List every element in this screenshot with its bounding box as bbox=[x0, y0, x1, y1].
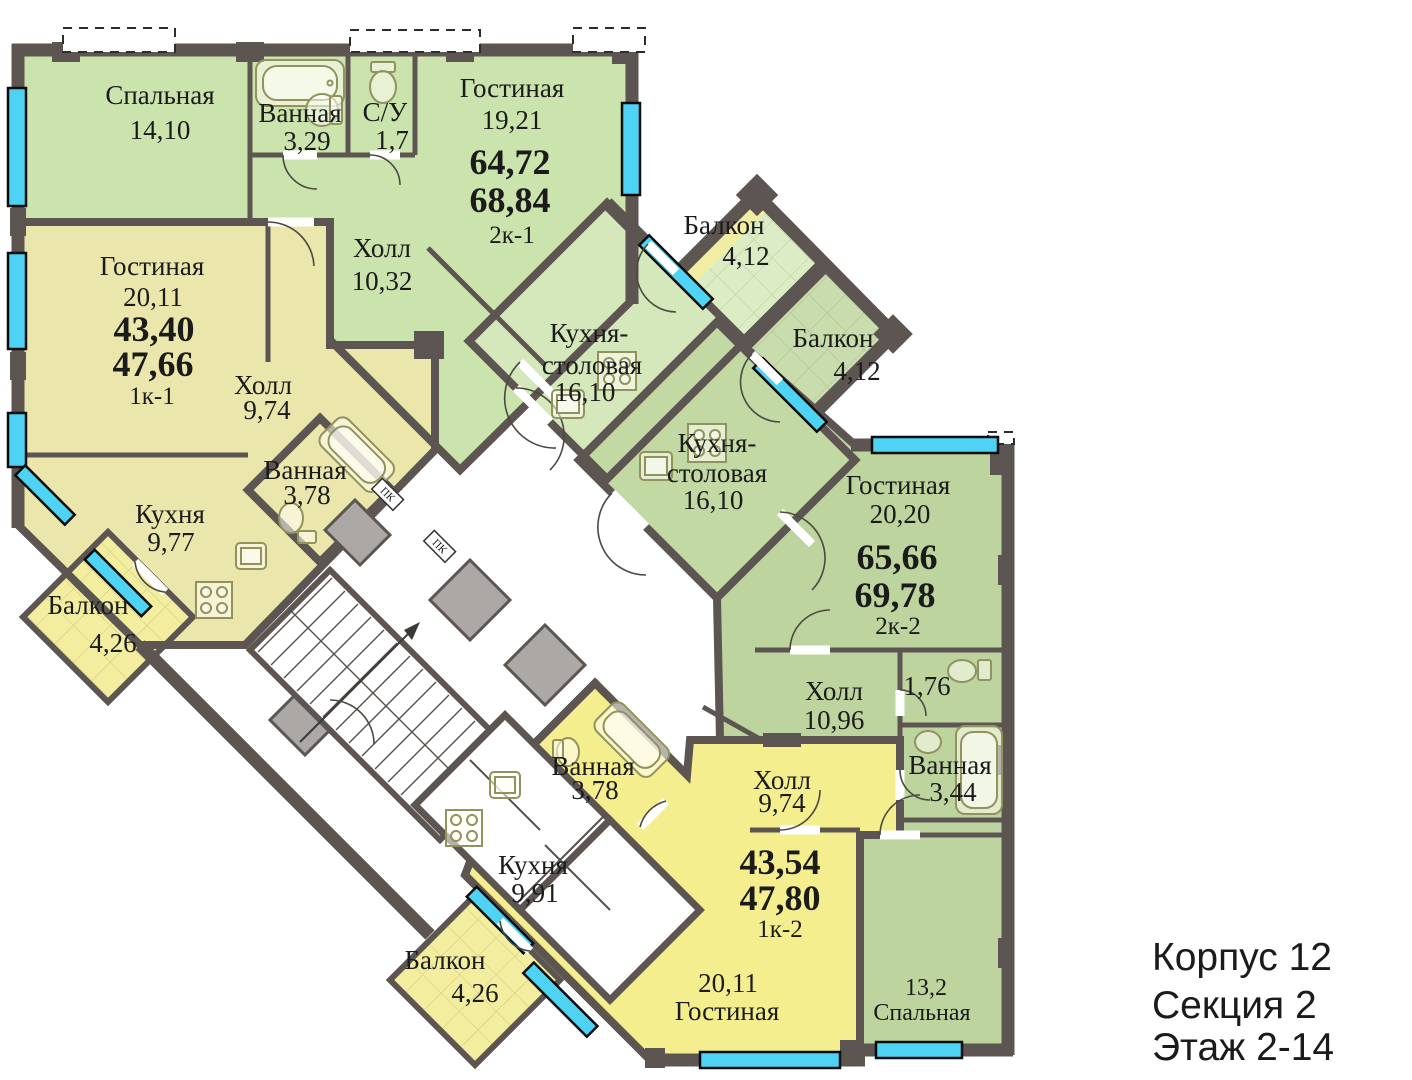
room-area: 9,91 bbox=[511, 878, 558, 908]
room-area: 4,26 bbox=[89, 628, 136, 658]
apartment-type: 1к-1 bbox=[129, 383, 174, 410]
window bbox=[700, 1052, 840, 1068]
room-label: Гостиная bbox=[846, 470, 951, 500]
room-area: 4,26 bbox=[451, 978, 498, 1008]
apartment-type: 2к-2 bbox=[875, 613, 920, 640]
room-area: 19,21 bbox=[482, 105, 543, 135]
room-label: Спальная bbox=[873, 1000, 970, 1026]
room-area: 9,74 bbox=[243, 395, 291, 425]
window bbox=[8, 253, 26, 349]
building-label: Корпус 12 bbox=[1152, 936, 1332, 979]
room-label: Гостиная bbox=[100, 251, 205, 281]
room-area: 1,7 bbox=[375, 125, 409, 155]
room-label: Холл bbox=[805, 676, 863, 706]
room-label: Ванная bbox=[258, 98, 341, 128]
room-area: 16,10 bbox=[555, 377, 616, 407]
toilet-icon bbox=[948, 660, 991, 682]
room-label: Кухня- bbox=[550, 318, 629, 348]
room-area: 20,20 bbox=[870, 499, 931, 529]
room-area: 4,12 bbox=[722, 241, 769, 271]
room-area: 3,44 bbox=[929, 777, 977, 807]
vent-shaft bbox=[350, 30, 480, 52]
room-area: 3,78 bbox=[571, 775, 618, 805]
room-label: столовая bbox=[542, 350, 642, 380]
room-area: 4,12 bbox=[833, 356, 880, 386]
floor-plan-svg: ПК ПК Спальная 14,10 Ванная 3,29 С/У 1,7… bbox=[0, 0, 1412, 1080]
apartment-area-total: 47,80 bbox=[740, 878, 821, 918]
apartment-area-living: 43,40 bbox=[114, 309, 195, 349]
apartment-area-total: 47,66 bbox=[113, 344, 194, 384]
room-area: 9,77 bbox=[147, 527, 194, 557]
room-area: 20,11 bbox=[698, 968, 758, 998]
room-label: Кухня- bbox=[678, 428, 757, 458]
window bbox=[8, 88, 26, 206]
room-label: Балкон bbox=[48, 590, 129, 620]
room-area: 9,74 bbox=[758, 788, 806, 818]
room-label: Ванная bbox=[908, 750, 991, 780]
room-label: Кухня bbox=[498, 850, 568, 880]
window bbox=[872, 437, 998, 453]
apartment-type: 1к-2 bbox=[757, 916, 802, 943]
room-label: Балкон bbox=[684, 210, 765, 240]
room-label: Балкон bbox=[405, 945, 486, 975]
room-label: Гостиная bbox=[675, 996, 780, 1026]
sink-icon bbox=[490, 772, 520, 798]
room-label: столовая bbox=[667, 458, 767, 488]
stairs-arrowhead bbox=[404, 622, 420, 640]
room-label: Балкон bbox=[793, 323, 874, 353]
room-area: 1,76 bbox=[903, 671, 950, 701]
vent-shaft bbox=[63, 28, 175, 52]
room-area: 10,32 bbox=[352, 266, 413, 296]
room-area: 13,2 bbox=[905, 975, 947, 1001]
section-label: Секция 2 bbox=[1152, 984, 1317, 1027]
room-area: 3,78 bbox=[283, 480, 330, 510]
window bbox=[876, 1042, 962, 1058]
apartment-area-total: 69,78 bbox=[855, 575, 936, 615]
stove-icon bbox=[196, 582, 232, 618]
room-area: 14,10 bbox=[130, 115, 191, 145]
sink-icon bbox=[236, 543, 266, 569]
apartment-area-living: 64,72 bbox=[470, 142, 551, 182]
room-label: С/У bbox=[363, 97, 409, 127]
apartment-area-living: 43,54 bbox=[740, 842, 821, 882]
apartment-area-total: 68,84 bbox=[470, 180, 551, 220]
fire-cabinets: ПК ПК bbox=[372, 478, 456, 562]
room-label: Гостиная bbox=[460, 73, 565, 103]
floor-plan: ПК ПК Спальная 14,10 Ванная 3,29 С/У 1,7… bbox=[0, 0, 1412, 1080]
room-area: 20,11 bbox=[123, 282, 183, 312]
stove-icon bbox=[446, 810, 482, 846]
apartment-type: 2к-1 bbox=[489, 222, 534, 249]
room-label: Холл bbox=[353, 233, 411, 263]
room-area: 10,96 bbox=[804, 705, 865, 735]
room-label: Кухня bbox=[135, 499, 205, 529]
window bbox=[8, 413, 26, 467]
vent-shaft bbox=[573, 28, 645, 52]
room-label: Спальная bbox=[105, 80, 214, 110]
window bbox=[622, 103, 640, 195]
floors-label: Этаж 2-14 bbox=[1152, 1026, 1334, 1069]
apartment-area-living: 65,66 bbox=[857, 537, 938, 577]
room-area: 3,29 bbox=[283, 126, 330, 156]
room-area: 16,10 bbox=[683, 485, 744, 515]
